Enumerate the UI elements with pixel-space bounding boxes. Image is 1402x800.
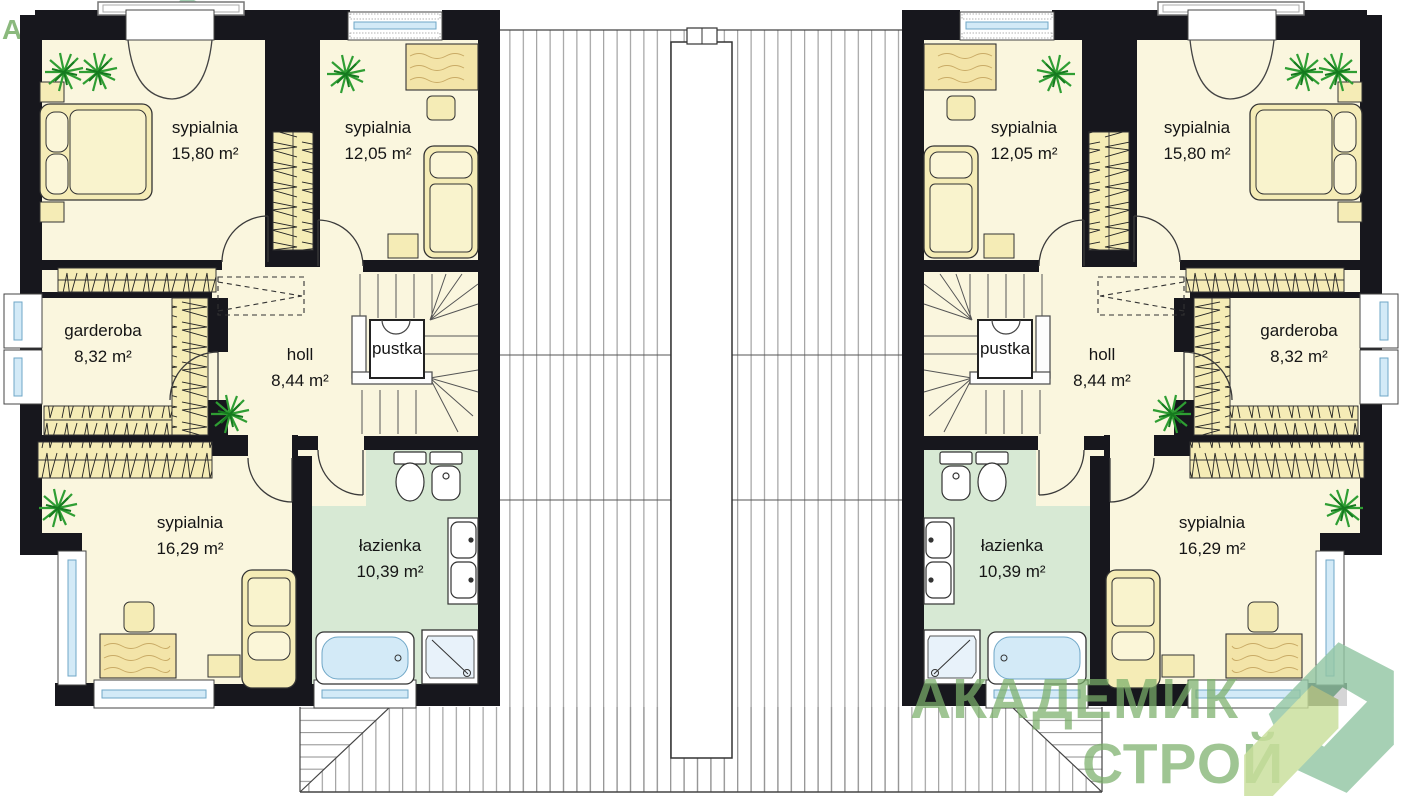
room-label-garderoba-right: garderoba 8,32 m² — [1260, 318, 1338, 370]
room-label-lazienka-left: łazienka 10,39 m² — [356, 533, 423, 585]
room-label-sypialnia-1580-right: sypialnia 15,80 m² — [1163, 115, 1230, 167]
room-label-holl-left: holl 8,44 m² — [271, 342, 329, 394]
chimney — [671, 28, 732, 758]
room-label-lazienka-right: łazienka 10,39 m² — [978, 533, 1045, 585]
room-label-sypialnia-1629-right: sypialnia 16,29 m² — [1178, 510, 1245, 562]
room-label-sypialnia-1629-left: sypialnia 16,29 m² — [156, 510, 223, 562]
room-label-garderoba-left: garderoba 8,32 m² — [64, 318, 142, 370]
room-label-pustka-left: pustka — [372, 336, 422, 362]
room-label-holl-right: holl 8,44 m² — [1073, 342, 1131, 394]
room-label-sypialnia-1205-right: sypialnia 12,05 m² — [990, 115, 1057, 167]
floor-plan-page: АКАДЕМИК СТРОЙ — [0, 0, 1402, 800]
room-label-sypialnia-1580-left: sypialnia 15,80 m² — [171, 115, 238, 167]
room-label-sypialnia-1205-left: sypialnia 12,05 m² — [344, 115, 411, 167]
room-label-pustka-right: pustka — [980, 336, 1030, 362]
